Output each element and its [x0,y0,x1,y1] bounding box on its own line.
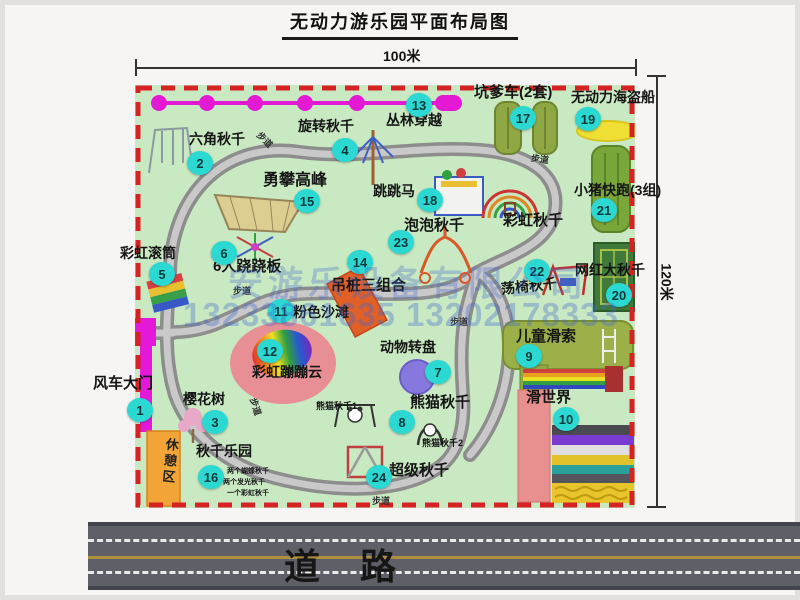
hexagon-swing-icon [149,128,193,173]
dimension-top-line [135,67,637,69]
dimension-right-label: 120米 [657,263,677,300]
attraction-badge-21: 21 [591,198,617,222]
park-map-screenshot: 无动力游乐园平面布局图 100米 120米 [0,0,800,600]
attraction-label-a5: 彩虹滚筒 [120,246,176,261]
attraction-label-a20: 网红大秋千 [575,263,645,278]
attraction-label-a18: 跳跳马 [373,184,415,199]
walkway-label: 步道 [372,494,390,507]
attraction-label-a24: 超级秋千 [389,463,449,479]
attraction-badge-23: 23 [388,230,414,254]
attraction-badge-24: 24 [366,465,392,489]
road-center-line [88,556,800,559]
rest-area-label: 休憩区 [147,436,182,487]
dimension-right-tick-bottom [647,506,666,508]
attraction-badge-19: 19 [575,107,601,131]
attraction-sublabel-a16-3: 一个彩虹秋千 [227,490,269,497]
attraction-badge-20: 20 [606,283,632,307]
road-lane-line [88,539,800,542]
dimension-right-tick-top [647,75,666,77]
attraction-label-a11: 粉色沙滩 [293,305,349,320]
attraction-badge-3: 3 [202,410,228,434]
attraction-label-a1: 风车大门 [93,376,153,392]
attraction-badge-5: 5 [149,262,175,286]
attraction-label-a8: 熊猫秋千 [410,395,470,411]
jumping-horse-icon [435,168,483,215]
attraction-badge-4: 4 [332,138,358,162]
walkway-label: 步道 [530,151,550,166]
attraction-label-a19: 无动力海盗船 [571,90,655,105]
road: 道路 [88,522,800,590]
attraction-badge-2: 2 [187,151,213,175]
attraction-label-panda1: 熊猫秋千1 [316,402,357,411]
seesaw-icon [237,233,273,261]
attraction-label-a12: 彩虹蹦蹦云 [252,365,322,380]
attraction-badge-1: 1 [127,398,153,422]
attraction-badge-11: 11 [268,299,294,323]
slide-world-icon [518,365,634,503]
attraction-badge-22: 22 [524,259,550,283]
attraction-badge-18: 18 [417,188,443,212]
attraction-badge-14: 14 [347,250,373,274]
attraction-sublabel-a16-2: 两个发光秋千 [223,479,265,486]
attraction-badge-13: 13 [406,93,432,117]
attraction-badge-8: 8 [389,410,415,434]
attraction-badge-12: 12 [257,339,283,363]
attraction-badge-10: 10 [553,407,579,431]
road-lane-line [88,571,800,574]
attraction-label-a10: 滑世界 [526,390,571,406]
attraction-label-a14: 吊桩三组合 [331,278,406,294]
walkway-label: 步道 [233,284,251,297]
dimension-top-tick-right [635,59,637,76]
dimension-top-tick-left [135,59,137,76]
attraction-badge-16: 16 [198,465,224,489]
attraction-label-a16: 秋千乐园 [196,444,252,459]
climbing-peak-icon [215,195,303,232]
attraction-badge-17: 17 [510,106,536,130]
attraction-badge-7: 7 [425,360,451,384]
attraction-label-a7: 动物转盘 [380,340,436,355]
walkway-label: 步道 [450,315,468,328]
bounce-cloud-icon [230,322,336,404]
attraction-label-rainbow-swing: 彩虹秋千 [503,213,563,229]
attraction-sublabel-a16-1: 两个蝴蝶秋千 [227,468,269,475]
attraction-badge-9: 9 [516,344,542,368]
attraction-label-a21: 小猪快跑(3组) [574,183,661,198]
attraction-label-a15: 勇攀高峰 [263,173,327,190]
page-title: 无动力游乐园平面布局图 [282,8,518,40]
attraction-label-a2: 六角秋千 [189,132,245,147]
attraction-label-panda2: 熊猫秋千2 [422,439,463,448]
road-label: 道路 [284,538,436,590]
attraction-label-a17: 坑爹车(2套) [474,85,552,101]
dimension-top-label: 100米 [383,46,420,66]
attraction-label-a4: 旋转秋千 [298,119,354,134]
attraction-label-a23: 泡泡秋千 [404,218,464,234]
attraction-badge-15: 15 [294,189,320,213]
attraction-label-a3: 樱花树 [183,392,225,407]
attraction-label-a9: 儿童滑索 [516,329,576,345]
attraction-badge-6: 6 [211,241,237,265]
